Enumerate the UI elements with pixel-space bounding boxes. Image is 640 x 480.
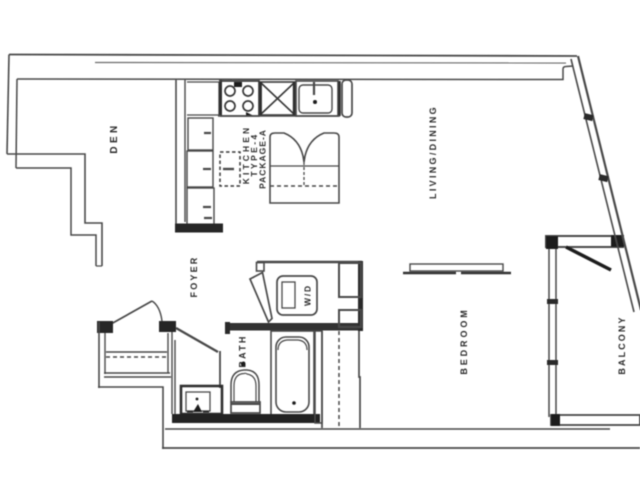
svg-text:BALCONY: BALCONY xyxy=(617,315,627,374)
svg-text:PACKAGE-A: PACKAGE-A xyxy=(258,129,268,189)
svg-text:LIVING/DINING: LIVING/DINING xyxy=(428,105,438,199)
svg-text:FOYER: FOYER xyxy=(189,255,199,297)
svg-text:DEN: DEN xyxy=(109,122,120,153)
svg-text:BEDROOM: BEDROOM xyxy=(459,307,469,374)
svg-text:W/D: W/D xyxy=(303,284,313,306)
